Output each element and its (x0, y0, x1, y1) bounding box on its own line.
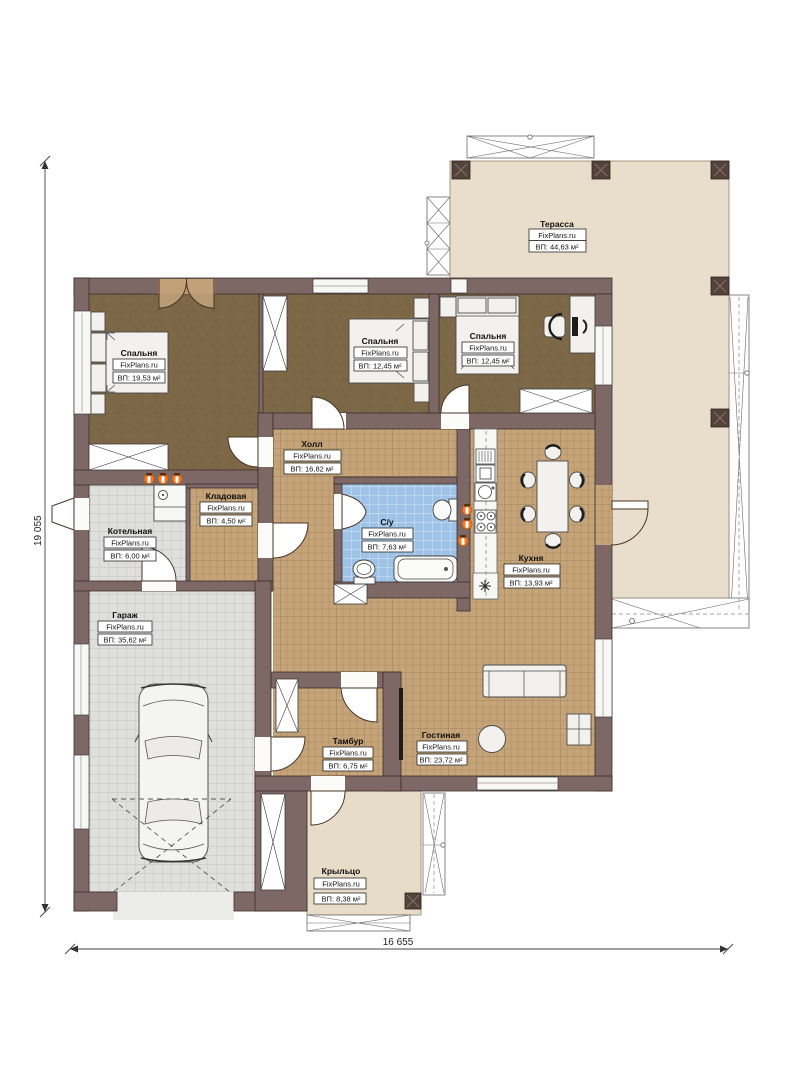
svg-text:ВП: 12,45 м²: ВП: 12,45 м² (466, 357, 510, 366)
svg-text:FixPlans.ru: FixPlans.ru (106, 623, 144, 632)
svg-text:Тамбур: Тамбур (333, 736, 364, 746)
svg-text:ВП: 19,53 м²: ВП: 19,53 м² (117, 374, 161, 383)
svg-text:ВП: 16,82 м²: ВП: 16,82 м² (290, 465, 334, 474)
svg-text:Терасса: Терасса (540, 219, 574, 229)
svg-text:FixPlans.ru: FixPlans.ru (361, 349, 399, 358)
svg-text:Холл: Холл (301, 439, 322, 449)
svg-text:ВП: 8,38 м²: ВП: 8,38 м² (322, 895, 361, 904)
svg-text:FixPlans.ru: FixPlans.ru (120, 361, 158, 370)
svg-text:Спальня: Спальня (121, 348, 158, 358)
svg-text:ВП: 35,62 м²: ВП: 35,62 м² (103, 636, 147, 645)
svg-text:19 055: 19 055 (33, 515, 44, 546)
svg-text:Котельная: Котельная (108, 526, 153, 536)
svg-text:ВП: 4,50 м²: ВП: 4,50 м² (207, 517, 246, 526)
svg-text:FixPlans.ru: FixPlans.ru (322, 880, 360, 889)
svg-text:ВП: 13,93 м²: ВП: 13,93 м² (509, 579, 553, 588)
svg-text:Кухня: Кухня (519, 553, 544, 563)
svg-text:FixPlans.ru: FixPlans.ru (207, 504, 245, 513)
svg-text:Крыльцо: Крыльцо (322, 866, 361, 876)
svg-text:FixPlans.ru: FixPlans.ru (469, 344, 507, 353)
svg-text:Кладовая: Кладовая (206, 491, 247, 501)
svg-text:FixPlans.ru: FixPlans.ru (293, 452, 331, 461)
svg-text:FixPlans.ru: FixPlans.ru (368, 530, 406, 539)
svg-text:FixPlans.ru: FixPlans.ru (111, 539, 149, 548)
svg-text:ВП: 44,63 м²: ВП: 44,63 м² (535, 243, 579, 252)
svg-text:ВП: 7,63 м²: ВП: 7,63 м² (368, 543, 407, 552)
svg-text:FixPlans.ru: FixPlans.ru (422, 743, 460, 752)
svg-text:С/у: С/у (380, 517, 394, 527)
svg-text:FixPlans.ru: FixPlans.ru (329, 749, 367, 758)
svg-text:ВП: 6,75 м²: ВП: 6,75 м² (329, 762, 368, 771)
svg-text:FixPlans.ru: FixPlans.ru (538, 231, 576, 240)
svg-text:ВП: 12,45 м²: ВП: 12,45 м² (358, 362, 402, 371)
svg-text:ВП: 23,72 м²: ВП: 23,72 м² (419, 756, 463, 765)
svg-text:16 655: 16 655 (383, 937, 414, 948)
svg-text:Спальня: Спальня (362, 336, 399, 346)
svg-text:Гостиная: Гостиная (422, 730, 460, 740)
svg-text:Спальня: Спальня (470, 331, 507, 341)
svg-text:ВП: 6,00 м²: ВП: 6,00 м² (111, 552, 150, 561)
svg-text:FixPlans.ru: FixPlans.ru (512, 566, 550, 575)
svg-text:Гараж: Гараж (112, 610, 138, 620)
